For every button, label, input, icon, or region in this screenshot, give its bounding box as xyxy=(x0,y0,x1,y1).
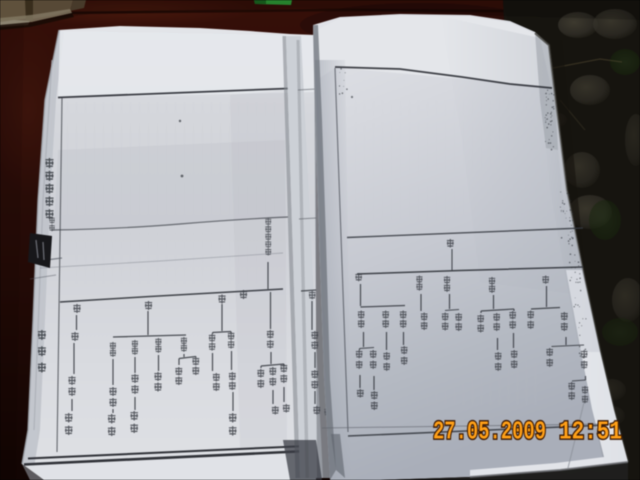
svg-text:12:51: 12:51 xyxy=(559,418,622,447)
svg-text:27.05.2009: 27.05.2009 xyxy=(433,418,546,447)
